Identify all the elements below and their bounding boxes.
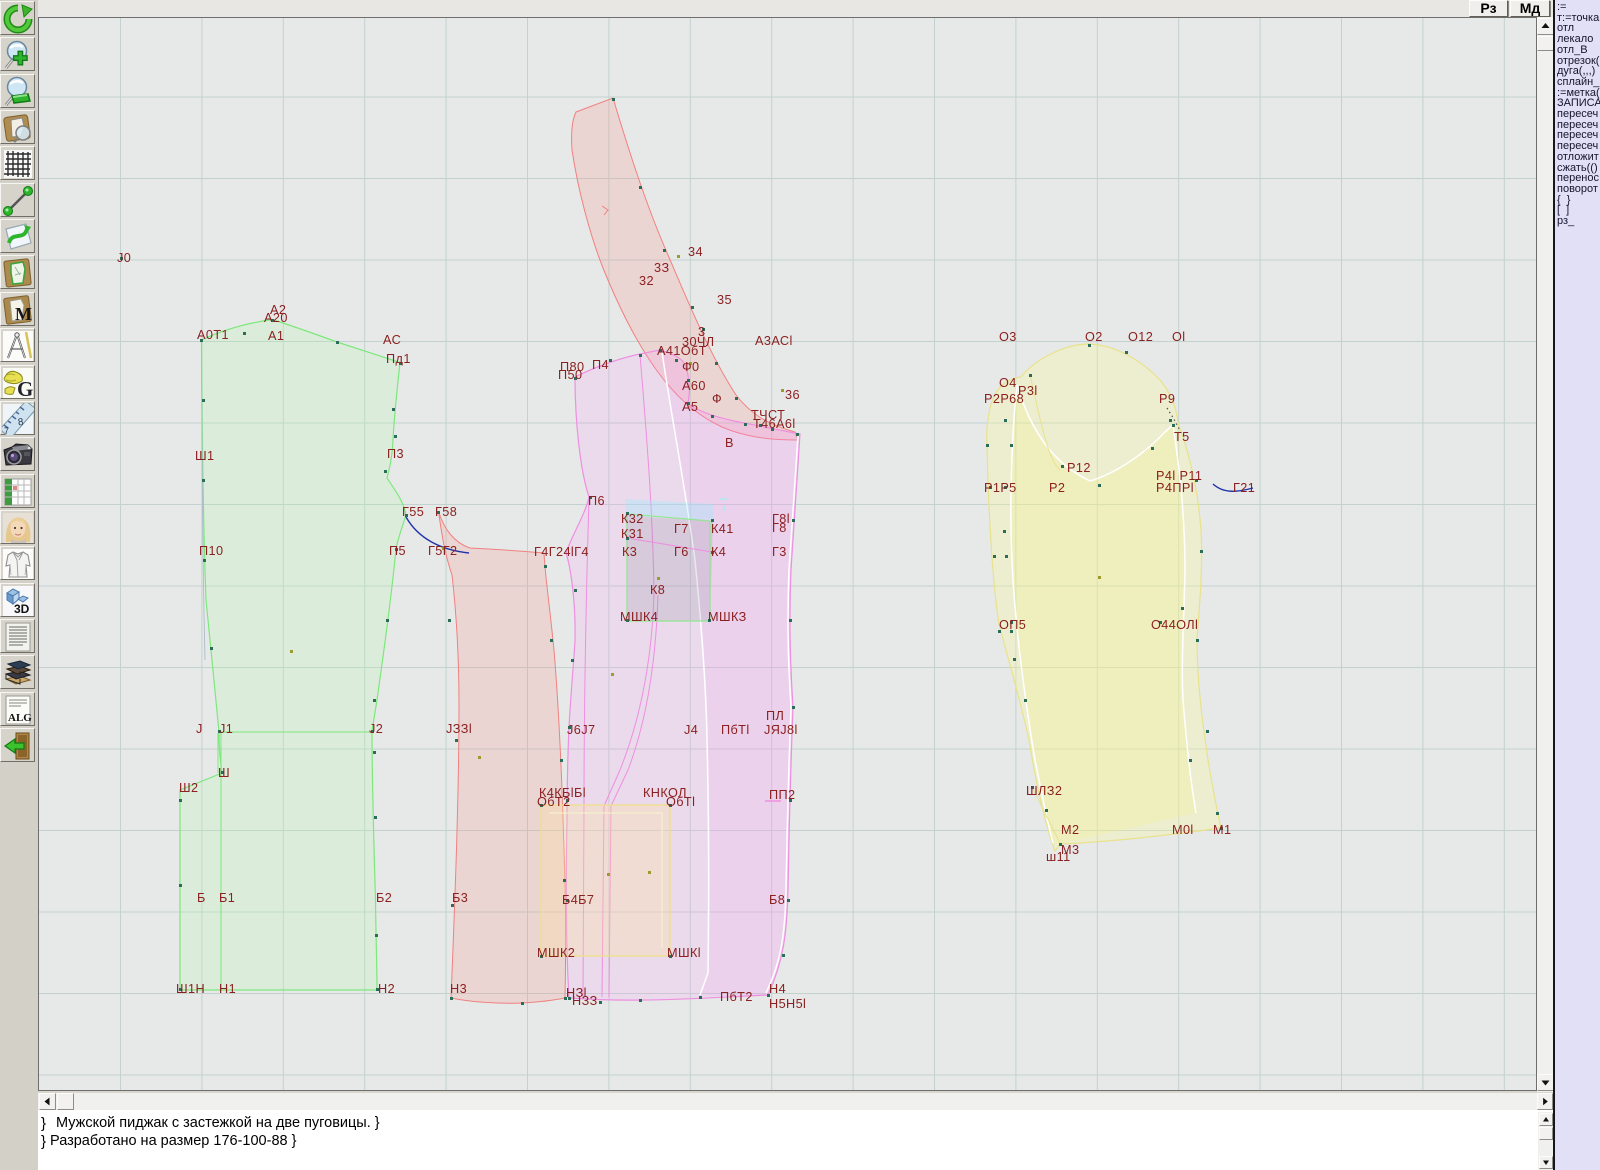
svg-text:П5: П5 — [389, 544, 406, 558]
svg-text:ЈЗЗl: ЈЗЗl — [446, 722, 472, 736]
svg-text:Ф: Ф — [712, 392, 722, 406]
svg-text:Б: Б — [197, 891, 206, 905]
svg-text:Р1Р5: Р1Р5 — [984, 481, 1017, 495]
svg-text:34: 34 — [688, 245, 703, 259]
svg-text:Пд1: Пд1 — [386, 352, 411, 366]
svg-text:Г5Г2: Г5Г2 — [428, 544, 457, 558]
svg-text:ПП2: ПП2 — [769, 788, 796, 802]
svg-text:АС: АС — [383, 333, 401, 347]
svg-text:О44ОЛl: О44ОЛl — [1151, 618, 1198, 632]
svg-text:Г21: Г21 — [1233, 481, 1255, 495]
svg-text:К8: К8 — [650, 583, 665, 597]
svg-text:Г4Г24lГ4: Г4Г24lГ4 — [534, 545, 589, 559]
svg-text:А3АСl: А3АСl — [755, 334, 793, 348]
svg-text:Б4Б7: Б4Б7 — [562, 893, 594, 907]
svg-text:Н1: Н1 — [219, 982, 236, 996]
svg-text:П6: П6 — [588, 494, 605, 508]
svg-text:Н2: Н2 — [378, 982, 395, 996]
svg-text:М0l: М0l — [1172, 823, 1194, 837]
svg-text:П10: П10 — [199, 544, 223, 558]
svg-text:Ш2: Ш2 — [179, 781, 198, 795]
svg-text:32: 32 — [639, 274, 654, 288]
svg-text:МШК2: МШК2 — [537, 946, 575, 960]
svg-text:Г58: Г58 — [435, 505, 457, 519]
svg-text:Ј2: Ј2 — [369, 722, 383, 736]
svg-text:А41ОбТ: А41ОбТ — [657, 344, 707, 358]
svg-text:М2: М2 — [1061, 823, 1079, 837]
svg-text:Ј4: Ј4 — [684, 723, 698, 737]
svg-text:О4: О4 — [999, 376, 1017, 390]
svg-text:Г55: Г55 — [402, 505, 424, 519]
svg-text:ПбТl: ПбТl — [721, 723, 750, 737]
svg-text:Б8: Б8 — [769, 893, 785, 907]
svg-text:Ш1Н: Ш1Н — [176, 982, 205, 996]
svg-text:ЈЯЈ8l: ЈЯЈ8l — [764, 723, 798, 737]
svg-text:3З: 3З — [654, 261, 670, 275]
svg-text:Б2: Б2 — [376, 891, 392, 905]
svg-text:МШКЗ: МШКЗ — [708, 610, 747, 624]
svg-text:G: G — [17, 377, 33, 399]
svg-text:Ш1: Ш1 — [195, 449, 214, 463]
svg-text:Т5: Т5 — [1174, 430, 1190, 444]
svg-text:П3: П3 — [387, 447, 404, 461]
svg-text:ш11: ш11 — [1046, 850, 1071, 864]
svg-text:Г8: Г8 — [772, 521, 787, 535]
svg-text:Ј0: Ј0 — [117, 251, 131, 265]
svg-text:П50: П50 — [558, 368, 582, 382]
svg-text:ПбТ2: ПбТ2 — [720, 990, 753, 1004]
svg-text:М1: М1 — [1213, 823, 1231, 837]
svg-text:О2: О2 — [1085, 330, 1103, 344]
svg-text:Т46А6l: Т46А6l — [753, 417, 796, 431]
svg-text:Ј1: Ј1 — [219, 722, 233, 736]
svg-text:ШЛЗ2: ШЛЗ2 — [1026, 784, 1062, 798]
svg-text:7: 7 — [4, 426, 9, 435]
svg-text:ОП5: ОП5 — [999, 618, 1026, 632]
svg-text:МШК4: МШК4 — [620, 610, 658, 624]
svg-text:А5: А5 — [682, 400, 698, 414]
svg-text:К4: К4 — [711, 545, 726, 559]
svg-text:Р9: Р9 — [1159, 392, 1175, 406]
svg-text:M: M — [15, 304, 32, 324]
svg-text:НЗЗ: НЗЗ — [572, 994, 598, 1008]
svg-text:Г7: Г7 — [674, 522, 689, 536]
svg-text:К32: К32 — [621, 512, 644, 526]
svg-text:ПЛ: ПЛ — [766, 709, 784, 723]
svg-text:О3: О3 — [999, 330, 1017, 344]
svg-text:МШКl: МШКl — [667, 946, 701, 960]
svg-text:Ј: Ј — [196, 722, 203, 736]
svg-text:Г6: Г6 — [674, 545, 689, 559]
svg-text:К3: К3 — [622, 545, 637, 559]
svg-text:В: В — [725, 436, 734, 450]
svg-text:Р2Р68: Р2Р68 — [984, 392, 1024, 406]
svg-text:Н4: Н4 — [769, 982, 786, 996]
svg-text:Ф0: Ф0 — [682, 360, 700, 374]
svg-text:А20: А20 — [264, 311, 288, 325]
svg-text:ОбТ2: ОбТ2 — [537, 795, 571, 809]
svg-text:А60: А60 — [682, 379, 706, 393]
svg-text:А1: А1 — [268, 329, 284, 343]
svg-text:Р2: Р2 — [1049, 481, 1065, 495]
svg-text:ALG: ALG — [8, 712, 32, 724]
svg-text:Ш: Ш — [218, 766, 230, 780]
svg-text:К31: К31 — [621, 527, 644, 541]
svg-text:Б1: Б1 — [219, 891, 235, 905]
svg-text:ОбТl: ОбТl — [666, 795, 695, 809]
svg-text:Г3: Г3 — [772, 545, 787, 559]
svg-text:Р4ПРl: Р4ПРl — [1156, 481, 1194, 495]
svg-text:Ј6Ј7: Ј6Ј7 — [567, 723, 595, 737]
svg-text:Б3: Б3 — [452, 891, 468, 905]
svg-text:Н5Н5l: Н5Н5l — [769, 997, 806, 1011]
svg-text:К41: К41 — [711, 522, 734, 536]
svg-text:Н3: Н3 — [450, 982, 467, 996]
svg-text:35: 35 — [717, 293, 732, 307]
svg-text:36: 36 — [785, 388, 800, 402]
svg-text:А0Т1: А0Т1 — [197, 328, 229, 342]
svg-text:О12: О12 — [1128, 330, 1153, 344]
svg-text:Р12: Р12 — [1067, 461, 1091, 475]
svg-text:Оl: Оl — [1172, 330, 1186, 344]
svg-text:П4: П4 — [592, 358, 609, 372]
svg-text:3D: 3D — [14, 602, 30, 616]
